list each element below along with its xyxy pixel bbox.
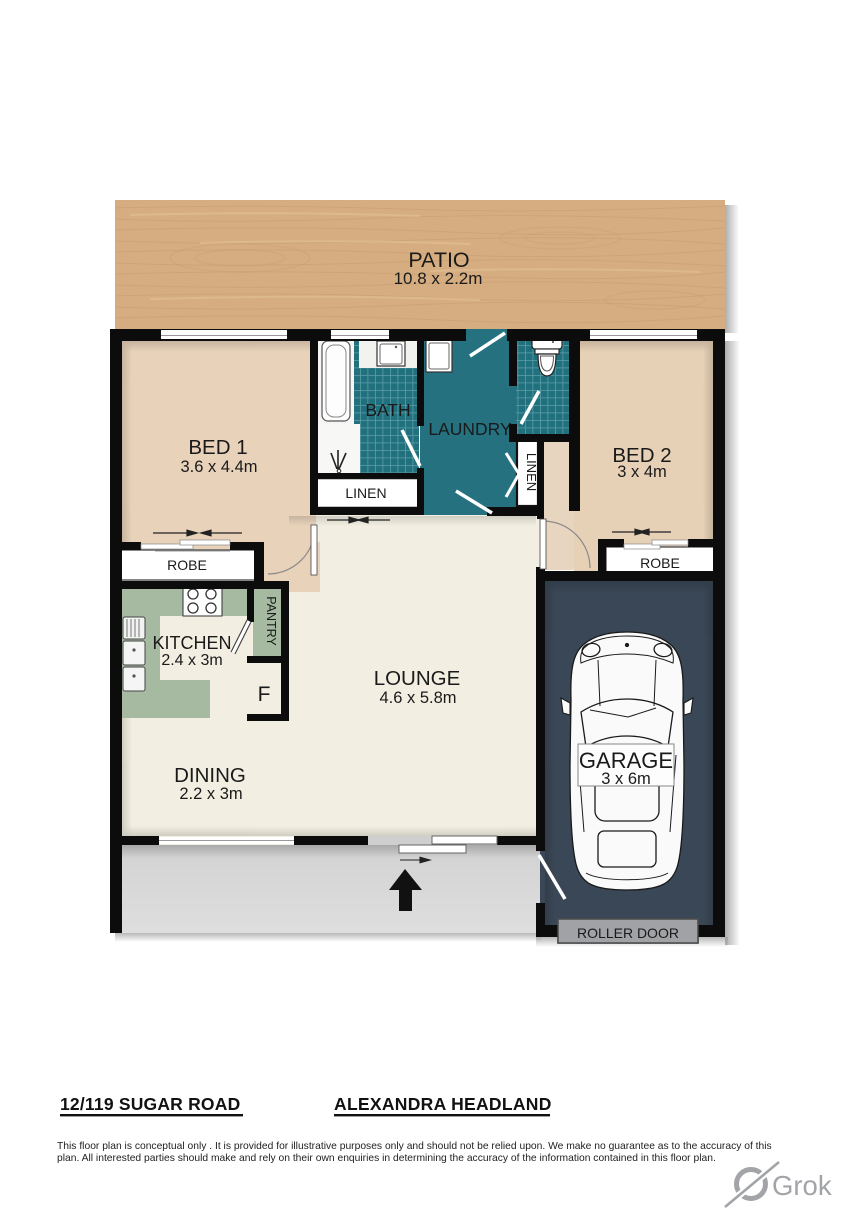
svg-text:LOUNGE: LOUNGE <box>374 667 461 690</box>
svg-text:BED 1: BED 1 <box>188 436 247 459</box>
svg-text:2.4 x 3m: 2.4 x 3m <box>161 652 222 669</box>
svg-text:BATH: BATH <box>365 400 410 420</box>
svg-text:LINEN: LINEN <box>345 485 386 501</box>
svg-text:Grok: Grok <box>772 1170 832 1201</box>
svg-text:PANTRY: PANTRY <box>264 596 278 646</box>
svg-text:2.2 x 3m: 2.2 x 3m <box>179 785 242 803</box>
svg-text:DINING: DINING <box>174 764 246 787</box>
svg-text:4.6 x 5.8m: 4.6 x 5.8m <box>379 689 456 707</box>
svg-text:KITCHEN: KITCHEN <box>152 633 231 653</box>
svg-text:ROBE: ROBE <box>167 557 207 573</box>
svg-text:LAUNDRY: LAUNDRY <box>428 419 512 439</box>
svg-text:3 x 4m: 3 x 4m <box>617 463 667 481</box>
svg-text:F: F <box>258 683 271 706</box>
svg-text:LINEN: LINEN <box>524 453 539 491</box>
svg-text:ROBE: ROBE <box>640 555 680 571</box>
svg-text:12/119 SUGAR ROAD: 12/119 SUGAR ROAD <box>60 1094 240 1114</box>
svg-text:ROLLER DOOR: ROLLER DOOR <box>577 925 679 941</box>
svg-text:10.8 x 2.2m: 10.8 x 2.2m <box>394 269 483 288</box>
svg-text:3 x 6m: 3 x 6m <box>601 770 651 788</box>
svg-text:3.6 x 4.4m: 3.6 x 4.4m <box>180 458 257 476</box>
svg-text:plan. All interested parties s: plan. All interested parties should make… <box>57 1153 716 1164</box>
svg-text:This floor plan is conceptual: This floor plan is conceptual only . It … <box>57 1141 772 1152</box>
svg-text:ALEXANDRA HEADLAND: ALEXANDRA HEADLAND <box>334 1094 552 1114</box>
